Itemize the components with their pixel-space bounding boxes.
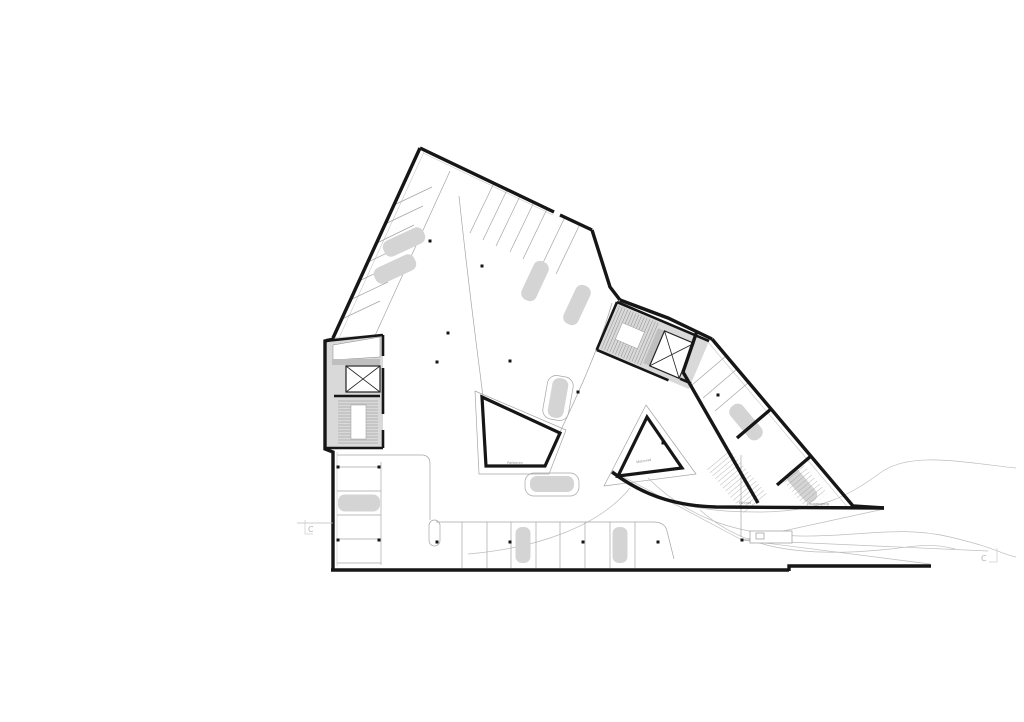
entry-details: [750, 531, 792, 543]
car-shape: [613, 527, 628, 563]
background: [0, 0, 1024, 722]
section-marker-left: C: [308, 525, 314, 534]
car-shape: [338, 495, 380, 512]
car-shape: [516, 527, 531, 563]
stair-elevator-core-left: [325, 334, 383, 448]
car-shape: [530, 476, 574, 492]
label-fahrrad: Fahrrad: [739, 501, 751, 505]
label-hauseingang: Hauseingang: [807, 502, 829, 506]
floor-plan-canvas: Parkieren Motorrad Fahrrad Hauseingang C…: [0, 0, 1024, 722]
label-parkieren: Parkieren: [507, 461, 522, 465]
floor-plan-page: Parkieren Motorrad Fahrrad Hauseingang C…: [0, 0, 1024, 722]
section-marker-right: C: [981, 554, 987, 563]
